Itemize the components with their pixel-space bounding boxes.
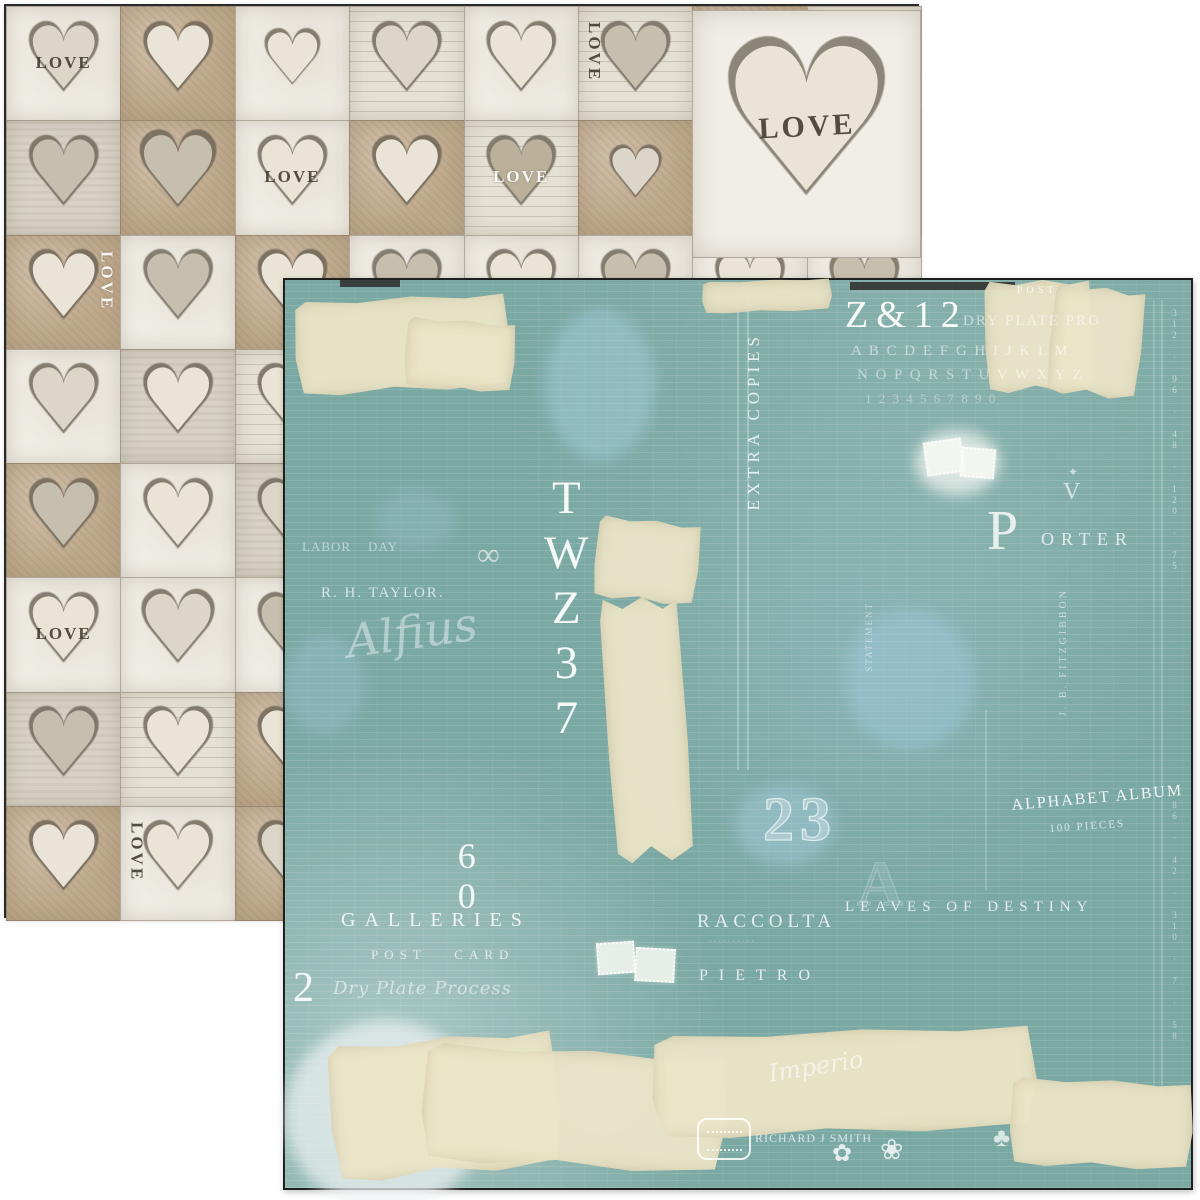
heart-pattern-cell: ♥♥ [6, 692, 121, 807]
number-23: 23 [763, 788, 837, 853]
love-label: LOVE [586, 22, 603, 82]
alphabet-album: ALPHABET ALBUM [1011, 783, 1184, 815]
heart-pattern-cell: ♥♥ [120, 463, 235, 578]
drafting-a: A [857, 850, 903, 917]
paper-tape-strip [403, 316, 518, 394]
heart-icon: ♥ [140, 358, 217, 444]
alphabet-row-2: N O P Q R S T U V W X Y Z [857, 368, 1084, 384]
scrapbook-paper-product-photo: ♥♥LOVE♥♥♥♥♥♥♥♥♥♥LOVE♥♥♥♥♥♥LOVE♥♥♥♥LOVE♥♥… [0, 0, 1200, 1200]
fitzgibbon: J. B. FITZGIBBON [1059, 588, 1070, 716]
ledger-numbers-right-2: 86 · 42 · 310 · 7 · 58 [1169, 800, 1178, 1042]
heart-pattern-cell: ♥♥LOVE [120, 806, 235, 921]
paper-tape-strip [1009, 1077, 1195, 1171]
heart-icon: ♥ [25, 130, 102, 216]
statement-vert: STATEMENT [865, 602, 874, 672]
raccolta-sub: · · · · · · · · · · [709, 938, 754, 946]
alphabet-row-3: 1 2 3 4 5 6 7 8 9 0 [865, 392, 997, 406]
heart-pattern-cell: ♥♥LOVE [6, 6, 121, 121]
heart-pattern-cell: ♥♥LOVE [464, 120, 579, 235]
porter-initial: P [987, 502, 1018, 561]
flower-1: ✿ [832, 1142, 852, 1167]
heart-icon: ♥ [25, 472, 102, 558]
paper-tape-strip [591, 515, 703, 607]
love-label: LOVE [98, 251, 115, 311]
heart-pattern-cell: ♥♥ [120, 349, 235, 464]
dry-plate-process: Dry Plate Process [333, 980, 512, 999]
heart-icon: ♥ [25, 358, 102, 444]
love-label: LOVE [264, 168, 320, 185]
heart-pattern-cell: ♥♥LOVE [6, 235, 121, 350]
label-day: Labor Day [302, 540, 398, 554]
postage-stamp [634, 947, 676, 983]
ledger-numbers-right: 312 · 96 · 48 · 120 · 75 [1169, 308, 1178, 572]
twz37: TWZ37 [541, 472, 590, 747]
love-label: LOVE [36, 54, 92, 71]
love-label: LOVE [493, 168, 549, 185]
album-pieces: 100 PIECES [1049, 819, 1126, 836]
heart-pattern-cell: ♥♥ [464, 6, 579, 121]
watercolor-splotch [545, 310, 655, 460]
porter-word: ORTER [1041, 530, 1134, 549]
heart-icon: ♥ [25, 244, 102, 330]
heart-pattern-cell: ♥♥ [6, 349, 121, 464]
heart-pattern-cell: ♥♥ [235, 6, 350, 121]
heart-icon: ♥ [262, 25, 324, 94]
pietro: PIETRO [699, 968, 821, 985]
heart-pattern-cell: ♥♥LOVE [235, 120, 350, 235]
heart-icon: ♥ [140, 701, 217, 787]
ledger-rule-line [1161, 300, 1163, 1160]
paper-tape-strip [598, 595, 696, 865]
ledger-rule-line [1153, 300, 1155, 1160]
heart-pattern-cell: ♥♥ [349, 120, 464, 235]
heart-icon: ♥ [136, 125, 221, 220]
heart-icon: ♥ [140, 244, 217, 330]
heart-icon: ♥ [368, 15, 445, 101]
heart-pattern-cell: ♥♥ [120, 235, 235, 350]
rh-taylor: R. H. TAYLOR. [321, 586, 445, 602]
crest-ornament: V [1063, 480, 1080, 505]
richard-smith: Richard J Smith [755, 1132, 872, 1145]
heart-pattern-cell: ♥♥LOVE [578, 6, 693, 121]
seal-stamp [697, 1118, 751, 1160]
postage-stamp [596, 941, 636, 976]
heart-icon: ♥ [138, 584, 219, 674]
post-card: POST CARD [371, 948, 514, 962]
clover-sprig: ♣ [993, 1124, 1010, 1151]
love-label: LOVE [128, 822, 145, 882]
flower-2: ❀ [880, 1136, 903, 1165]
heart-pattern-cell: ♥♥ [120, 120, 235, 235]
heart-pattern-cell: ♥♥ [120, 6, 235, 121]
teal-ledger-paper-sheet: Z&12Dry Plate ProPOSTA B C D E F G H I J… [283, 278, 1193, 1190]
heart-pattern-cell: ♥♥ [120, 692, 235, 807]
number-2: 2 [293, 966, 314, 1010]
heart-icon: ♥ [607, 142, 665, 207]
heart-pattern-cell: ♥♥ [6, 463, 121, 578]
extra-copies: EXTRA COPIES [745, 332, 763, 511]
alphabet-row-1: A B C D E F G H I J K L M [851, 344, 1070, 360]
heart-pattern-cell: ♥♥ [349, 6, 464, 121]
heart-pattern-cell: ♥♥ [120, 577, 235, 692]
heart-pattern-cell: ♥♥ [6, 806, 121, 921]
infinity-mark: ∞ [477, 538, 500, 572]
heart-pattern-cell: ♥♥ [578, 120, 693, 235]
crest-star: ✦ [1068, 466, 1078, 479]
love-label: LOVE [36, 625, 92, 642]
heart-icon: ♥ [140, 472, 217, 558]
number-60: 60 [447, 836, 485, 916]
heart-icon: ♥ [25, 701, 102, 787]
ledger-rule-line [985, 710, 987, 890]
galleries: GALLERIES [341, 910, 531, 931]
dark-edge-strip [340, 280, 400, 287]
heart-pattern-cell: ♥♥ [6, 120, 121, 235]
handwriting-1: Alfius [343, 600, 480, 666]
heart-icon: ♥ [483, 15, 560, 101]
heart-pattern-cell: ♥♥LOVE [6, 577, 121, 692]
seal-stamp-lines [707, 1131, 742, 1150]
dry-plate-top: Dry Plate Pro [963, 314, 1101, 330]
post-label: POST [1017, 286, 1057, 297]
heart-icon: ♥ [25, 815, 102, 901]
heart-icon: ♥ [140, 815, 217, 901]
raccolta: RACCOLTA [697, 912, 836, 932]
postage-stamp [960, 447, 996, 480]
heart-icon: ♥ [140, 15, 217, 101]
love-label: LOVE [757, 109, 855, 144]
big-love-heart-cell: ♥♥LOVE [692, 10, 921, 258]
code-z12: Z&12 [845, 296, 968, 336]
heart-icon: ♥ [597, 15, 674, 101]
heart-icon: ♥ [368, 130, 445, 216]
paper-tape-strip [701, 278, 832, 315]
postage-stamp [923, 438, 965, 477]
ledger-rule-line [737, 290, 739, 770]
